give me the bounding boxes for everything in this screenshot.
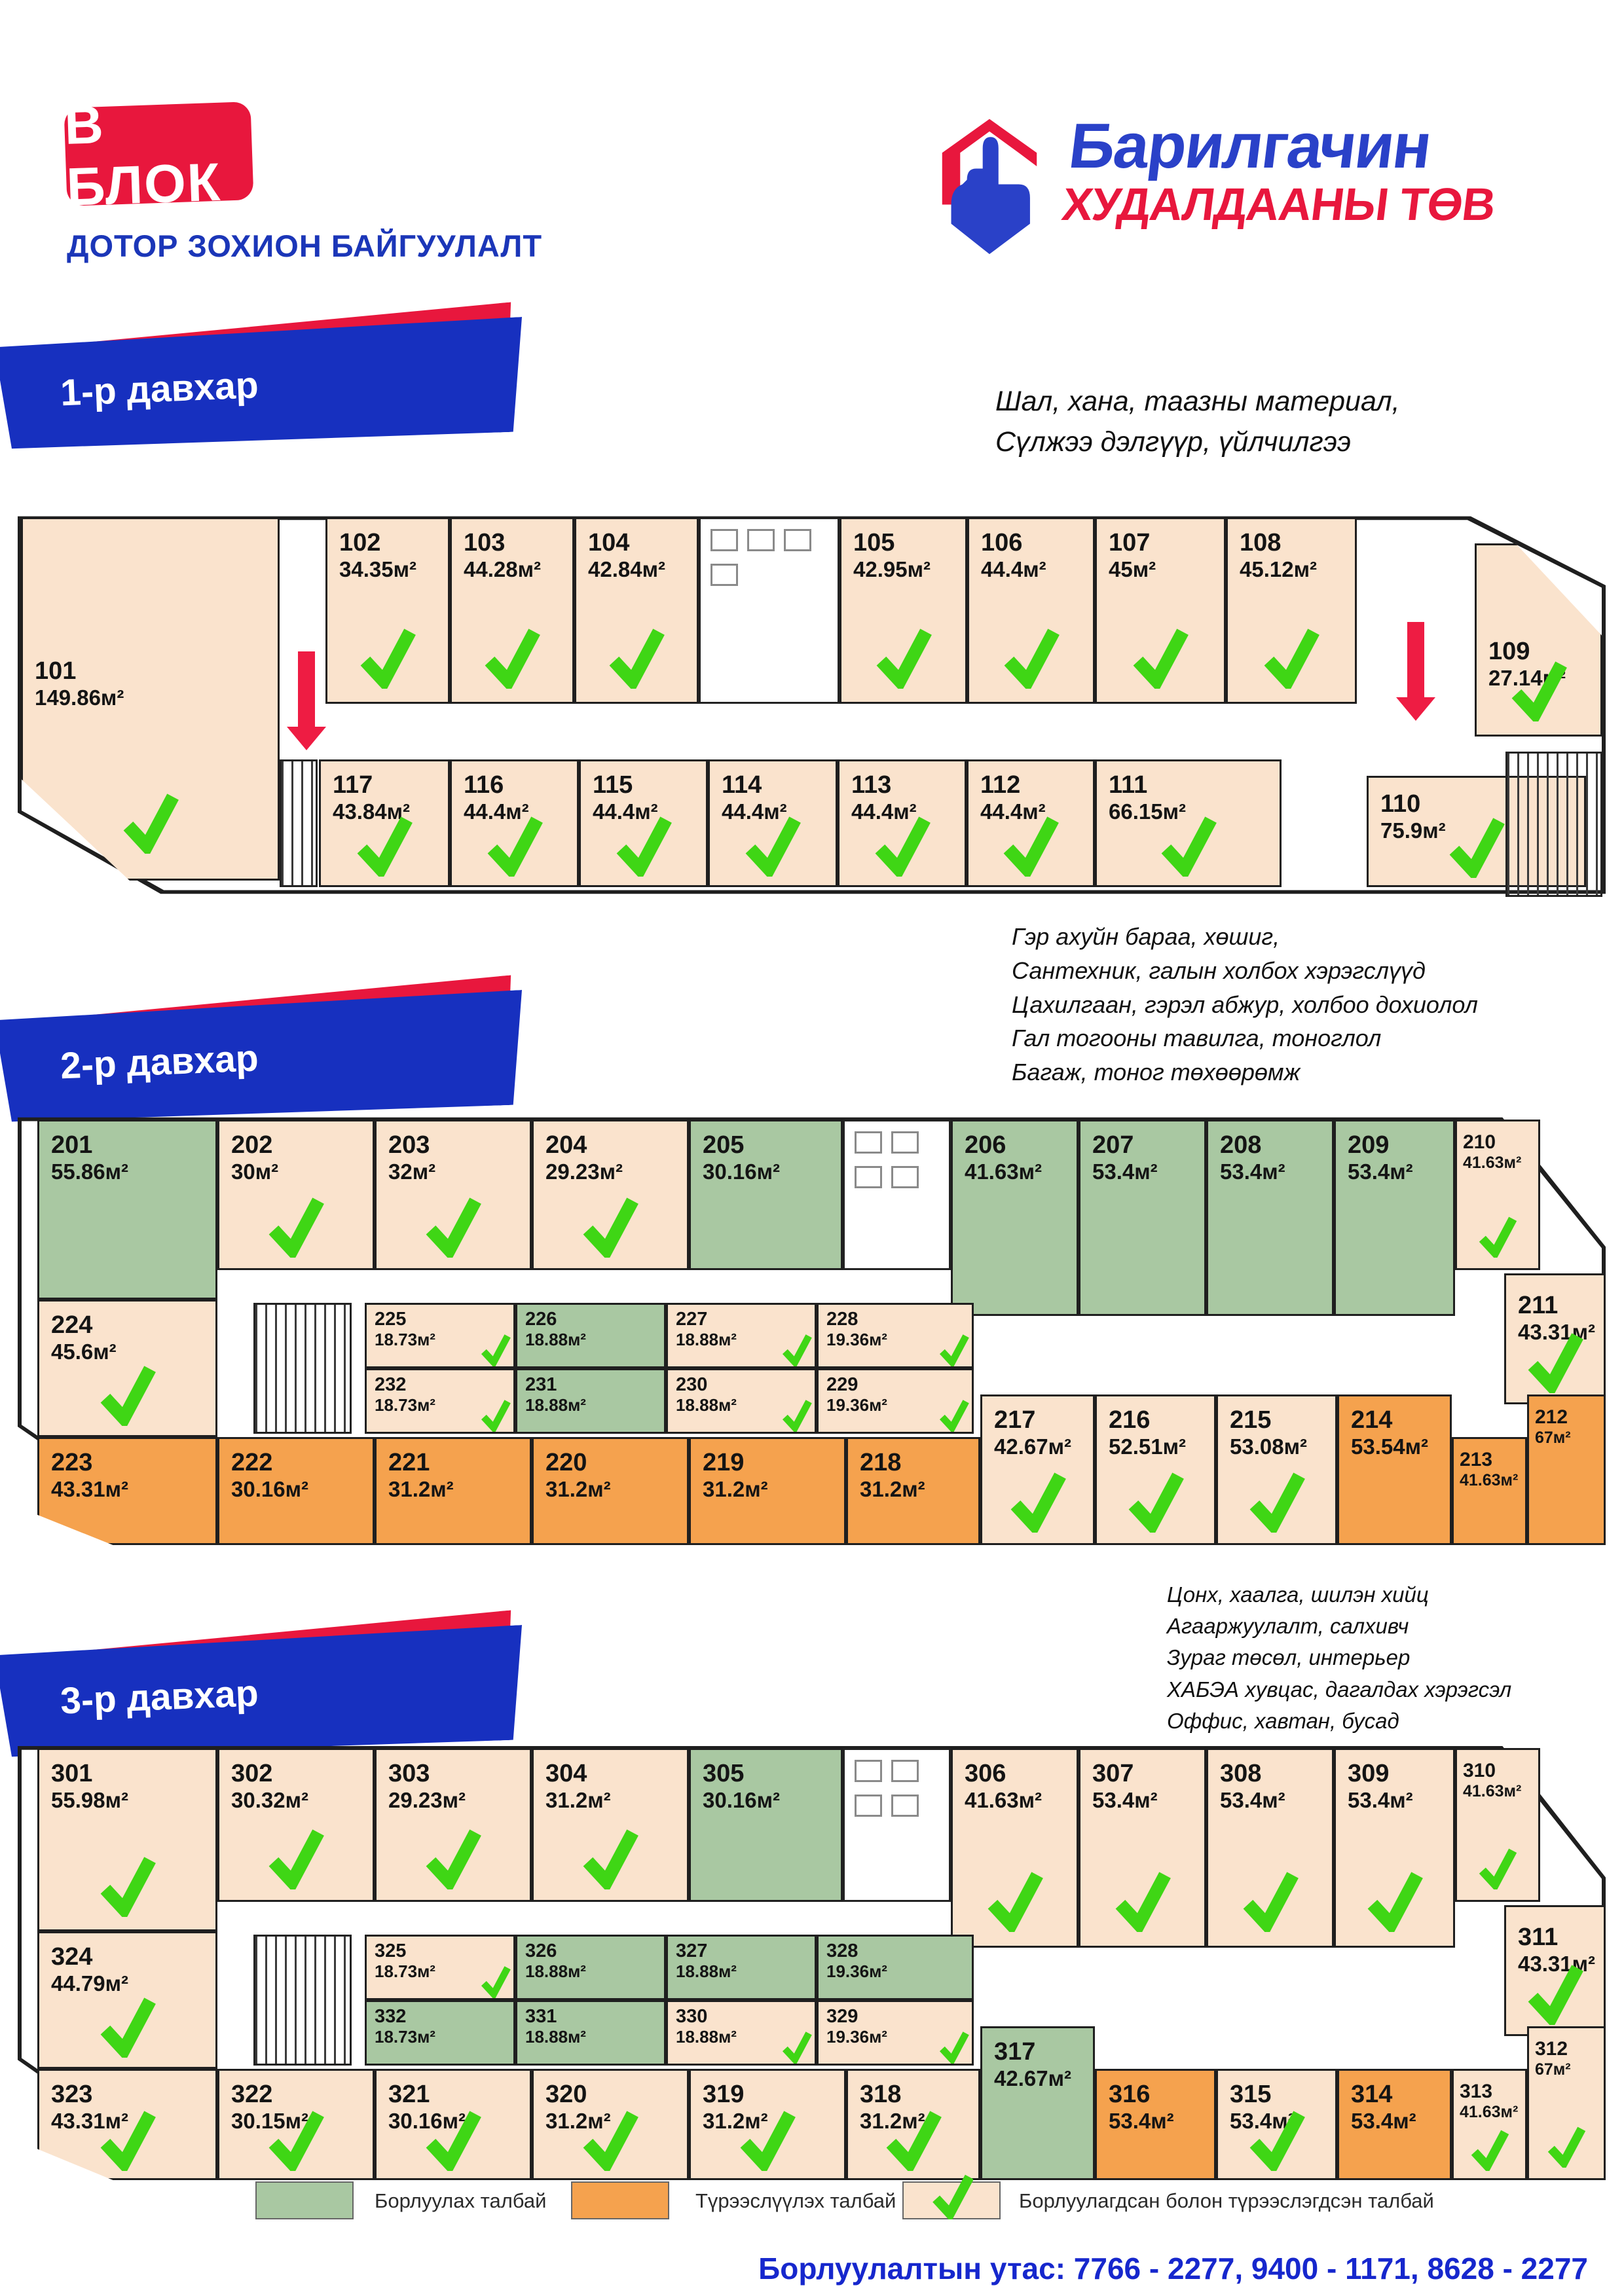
logo-text: Барилгачин ХУДАЛДААНЫ ТӨВ (1054, 113, 1506, 268)
room-214: 21453.54м² (1337, 1394, 1452, 1545)
room-320: 32031.2м² (532, 2069, 689, 2180)
check-icon (1527, 1332, 1583, 1393)
wc-fixture-icon (855, 1166, 882, 1188)
room-area: 44.4м² (981, 558, 1093, 582)
room-area: 53.4м² (1348, 1160, 1453, 1184)
check-icon (876, 627, 932, 689)
room-area: 44.79м² (51, 1972, 215, 1996)
down-arrow-icon (1407, 622, 1424, 697)
room-226: 22618.88м² (515, 1303, 666, 1368)
wc-fixture-icon (891, 1760, 919, 1782)
room-number: 325 (375, 1940, 513, 1962)
stairs (253, 1935, 352, 2066)
room-325: 32518.73м² (365, 1935, 515, 2000)
check-icon (1471, 2129, 1509, 2171)
stairs (253, 1303, 352, 1434)
check-icon (782, 2031, 812, 2064)
company-logo: Барилгачин ХУДАЛДААНЫ ТӨВ (933, 113, 1496, 268)
floor1-banner: 1-р давхар (0, 327, 530, 442)
room-number: 112 (980, 771, 1093, 800)
room-number: 113 (851, 771, 965, 800)
room-303: 30329.23м² (375, 1748, 532, 1902)
floor2-note: Гэр ахуйн бараа, хөшиг, Сантехник, галын… (1012, 920, 1478, 1089)
room-number: 227 (676, 1308, 815, 1330)
logo-house-hand-icon (933, 113, 1046, 268)
logo-line1: Барилгачин (1065, 113, 1506, 179)
room-area: 43.31м² (51, 1478, 215, 1502)
room-area: 53.4м² (1351, 2109, 1450, 2134)
room-number: 232 (375, 1374, 513, 1396)
room-112: 11244.4м² (967, 759, 1095, 887)
check-icon (939, 1334, 969, 1366)
check-icon (425, 1828, 481, 1889)
stairs (280, 759, 318, 887)
check-icon (425, 2109, 481, 2171)
room-number: 104 (588, 528, 697, 558)
room-number: 317 (994, 2037, 1093, 2067)
room-area: 18.73м² (375, 2028, 513, 2047)
check-icon (487, 815, 543, 877)
room-319: 31931.2м² (689, 2069, 846, 2180)
room-number: 108 (1240, 528, 1355, 558)
check-icon (932, 2174, 973, 2219)
check-icon (268, 1196, 324, 1258)
room-area: 19.36м² (826, 1962, 972, 1981)
check-icon (122, 792, 179, 854)
room-number: 207 (1092, 1131, 1204, 1160)
legend-sale-label: Борлуулах талбай (375, 2189, 546, 2213)
room-308: 30853.4м² (1206, 1748, 1334, 1948)
room-number: 306 (965, 1759, 1077, 1789)
banner-blue-shape: 1-р давхар (0, 317, 532, 453)
legend-sold-label: Борлуулагдсан болон түрээслэгдсэн талбай (1019, 2189, 1434, 2213)
room-number: 223 (51, 1448, 215, 1478)
wc-fixture-icon (747, 529, 775, 551)
room-number: 322 (231, 2080, 373, 2109)
room-329: 32919.36м² (817, 2000, 974, 2066)
room-number: 203 (388, 1131, 530, 1160)
room-207: 20753.4м² (1079, 1120, 1206, 1316)
room-230: 23018.88м² (666, 1368, 817, 1434)
check-icon (1003, 627, 1060, 689)
room-area: 53.4м² (1109, 2109, 1214, 2134)
check-icon (100, 1996, 156, 2058)
room-number: 208 (1220, 1131, 1332, 1160)
legend-rent-swatch (571, 2181, 669, 2219)
check-icon (874, 815, 931, 877)
check-icon (987, 1870, 1043, 1932)
check-icon (481, 1965, 511, 1998)
room-315: 31553.4м² (1216, 2069, 1337, 2180)
room-302: 30230.32м² (217, 1748, 375, 1902)
check-icon (100, 1364, 156, 1426)
check-icon (782, 1399, 812, 1432)
brochure-page: В БЛОК ДОТОР ЗОХИОН БАЙГУУЛАЛТ Барилгачи… (0, 0, 1624, 2296)
room-number: 328 (826, 1940, 972, 1962)
check-icon (582, 1828, 638, 1889)
check-icon (939, 2031, 969, 2064)
room-area: 45м² (1109, 558, 1224, 582)
room-number: 314 (1351, 2080, 1450, 2109)
room-331: 33118.88м² (515, 2000, 666, 2066)
check-icon (1479, 1216, 1517, 1258)
room-321: 32130.16м² (375, 2069, 532, 2180)
room-area: 53.54м² (1351, 1435, 1450, 1459)
room-323: 32343.31м² (37, 2069, 217, 2180)
room-area: 67м² (1535, 2060, 1604, 2079)
room-area: 31.2м² (388, 1478, 530, 1502)
room-330: 33018.88м² (666, 2000, 817, 2066)
room-317: 31742.67м² (980, 2026, 1095, 2180)
room-area: 18.88м² (676, 1962, 815, 1981)
room-109: 10927.14м² (1475, 543, 1602, 737)
room-114: 11444.4м² (708, 759, 838, 887)
room-307: 30753.4м² (1079, 1748, 1206, 1948)
room-number: 218 (860, 1448, 978, 1478)
room-number: 206 (965, 1131, 1077, 1160)
room-number: 309 (1348, 1759, 1453, 1789)
room-304: 30431.2м² (532, 1748, 689, 1902)
room-number: 320 (545, 2080, 687, 2109)
room-area: 32м² (388, 1160, 530, 1184)
room-area: 41.63м² (1460, 1471, 1525, 1489)
check-icon (484, 627, 540, 689)
check-icon (739, 2109, 796, 2171)
room-number: 327 (676, 1940, 815, 1962)
room-number: 205 (703, 1131, 841, 1160)
room-area: 53.08м² (1230, 1435, 1335, 1459)
room-number: 102 (339, 528, 448, 558)
check-icon (745, 815, 801, 877)
room-number: 105 (853, 528, 965, 558)
room-212: 21267м² (1527, 1394, 1606, 1545)
room-area: 41.63м² (1463, 1782, 1538, 1800)
room-number: 219 (703, 1448, 844, 1478)
room-309: 30953.4м² (1334, 1748, 1455, 1948)
room-area: 42.67м² (994, 2067, 1093, 2091)
room-number: 321 (388, 2080, 530, 2109)
room-number: 101 (35, 657, 278, 686)
check-icon (1479, 1848, 1517, 1889)
room-312: 31267м² (1527, 2026, 1606, 2180)
room-number: 209 (1348, 1131, 1453, 1160)
room-314: 31453.4м² (1337, 2069, 1452, 2180)
room-216: 21652.51м² (1095, 1394, 1216, 1545)
room-number: 302 (231, 1759, 373, 1789)
legend-sale-swatch (255, 2181, 354, 2219)
room-number: 222 (231, 1448, 373, 1478)
room-number: 225 (375, 1308, 513, 1330)
wc-fixture-icon (855, 1795, 882, 1817)
room-area: 18.88м² (525, 2028, 664, 2047)
room-number: 106 (981, 528, 1093, 558)
room-108: 10845.12м² (1226, 517, 1357, 704)
room-221: 22131.2м² (375, 1437, 532, 1545)
room-area: 53.4м² (1220, 1160, 1332, 1184)
room-number: 117 (333, 771, 448, 800)
room-232: 23218.73м² (365, 1368, 515, 1434)
room-area: 18.88м² (525, 1396, 664, 1415)
room-301: 30155.98м² (37, 1748, 217, 1931)
check-icon (1160, 815, 1217, 877)
room-111: 11166.15м² (1095, 759, 1282, 887)
room-322: 32230.15м² (217, 2069, 375, 2180)
floor3-banner-label: 3-р давхар (0, 1671, 259, 1725)
room-number: 224 (51, 1311, 215, 1340)
room-211: 21143.31м² (1504, 1273, 1606, 1404)
room-area: 42.95м² (853, 558, 965, 582)
room-number: 115 (593, 771, 706, 800)
room-number: 202 (231, 1131, 373, 1160)
room-number: 318 (860, 2080, 978, 2109)
room-area: 30м² (231, 1160, 373, 1184)
block-badge-label: В БЛОК (64, 89, 254, 219)
room-area: 30.16м² (703, 1789, 841, 1813)
room-area: 31.2м² (545, 1789, 687, 1813)
room-number: 213 (1460, 1448, 1525, 1471)
room-209: 20953.4м² (1334, 1120, 1455, 1316)
legend-sold-swatch (902, 2181, 1001, 2219)
check-icon (1132, 627, 1189, 689)
room-305: 30530.16м² (689, 1748, 843, 1902)
room-area: 52.51м² (1109, 1435, 1214, 1459)
room-area: 53.4м² (1092, 1160, 1204, 1184)
room-116: 11644.4м² (450, 759, 579, 887)
room-number: 312 (1535, 2037, 1604, 2060)
room-number: 310 (1463, 1759, 1538, 1782)
room-number: 212 (1535, 1406, 1604, 1429)
room-number: 329 (826, 2005, 972, 2028)
room-number: 303 (388, 1759, 530, 1789)
room-area: 53.4м² (1220, 1789, 1332, 1813)
room-210: 21041.63м² (1455, 1120, 1540, 1270)
room-number: 311 (1518, 1923, 1604, 1952)
room-number: 216 (1109, 1406, 1214, 1435)
floor3-banner: 3-р давхар (0, 1635, 530, 1750)
check-icon (1527, 1963, 1583, 2025)
wc-fixture-icon (710, 564, 738, 586)
room-332: 33218.73м² (365, 2000, 515, 2066)
check-icon (1511, 660, 1567, 721)
room-area: 29.23м² (388, 1789, 530, 1813)
room-number: 324 (51, 1942, 215, 1972)
check-icon (1263, 627, 1319, 689)
check-icon (1115, 1870, 1171, 1932)
check-icon (1367, 1870, 1423, 1932)
room-area: 53.4м² (1348, 1789, 1453, 1813)
room-number: 114 (722, 771, 836, 800)
room-number: 201 (51, 1131, 215, 1160)
room-area: 41.63м² (965, 1160, 1077, 1184)
floor2-banner-label: 2-р давхар (0, 1036, 259, 1090)
floor1-banner-label: 1-р давхар (0, 363, 259, 417)
room-number: 111 (1109, 771, 1280, 800)
room-area: 31.2м² (545, 1478, 687, 1502)
room-number: 308 (1220, 1759, 1332, 1789)
check-icon (356, 815, 413, 877)
wc-fixture-icon (891, 1166, 919, 1188)
room-213: 21341.63м² (1452, 1437, 1527, 1545)
room-area: 45.12м² (1240, 558, 1355, 582)
room-105: 10542.95м² (840, 517, 967, 704)
logo-line2: ХУДАЛДААНЫ ТӨВ (1060, 179, 1498, 230)
room-area: 42.84м² (588, 558, 697, 582)
check-icon (616, 815, 672, 877)
room-311: 31143.31м² (1504, 1905, 1606, 2036)
check-icon (268, 2109, 324, 2171)
room-117: 11743.84м² (319, 759, 450, 887)
check-icon (608, 627, 665, 689)
room-area: 42.67м² (994, 1435, 1093, 1459)
room-number: 332 (375, 2005, 513, 2028)
room-number: 211 (1518, 1291, 1604, 1321)
wc-fixture-icon (710, 529, 738, 551)
room-201: 20155.86м² (37, 1120, 217, 1300)
check-icon (1449, 816, 1505, 878)
room-225: 22518.73м² (365, 1303, 515, 1368)
room-number: 221 (388, 1448, 530, 1478)
room-306: 30641.63м² (951, 1748, 1079, 1948)
room-313: 31341.63м² (1452, 2069, 1527, 2180)
room-area: 31.2м² (860, 1478, 978, 1502)
wc-fixture-icon (891, 1795, 919, 1817)
wc-block (843, 1120, 951, 1270)
floor2-plan: 20155.86м²20230м²20332м²20429.23м²20530.… (18, 1106, 1606, 1545)
room-number: 231 (525, 1374, 664, 1396)
floor3-note: Цонх, хаалга, шилэн хийц Агааржуулалт, с… (1167, 1579, 1511, 1737)
legend-rent-label: Түрээслүүлэх талбай (695, 2189, 896, 2213)
check-icon (582, 2109, 638, 2171)
room-102: 10234.35м² (325, 517, 450, 704)
room-328: 32819.36м² (817, 1935, 974, 2000)
room-area: 67м² (1535, 1429, 1604, 1447)
room-310: 31041.63м² (1455, 1748, 1540, 1902)
room-number: 313 (1460, 2080, 1525, 2103)
room-area: 149.86м² (35, 686, 278, 710)
room-115: 11544.4м² (579, 759, 708, 887)
check-icon (1249, 1471, 1305, 1533)
room-217: 21742.67м² (980, 1394, 1095, 1545)
room-number: 305 (703, 1759, 841, 1789)
floor1-note: Шал, хана, таазны материал, Сүлжээ дэлгү… (995, 381, 1400, 463)
room-area: 30.32м² (231, 1789, 373, 1813)
room-area: 41.63м² (965, 1789, 1077, 1813)
room-number: 214 (1351, 1406, 1450, 1435)
room-number: 217 (994, 1406, 1093, 1435)
room-204: 20429.23м² (532, 1120, 689, 1270)
room-106: 10644.4м² (967, 517, 1095, 704)
room-number: 304 (545, 1759, 687, 1789)
room-number: 331 (525, 2005, 664, 2028)
down-arrow-icon (298, 651, 315, 727)
wc-block (699, 517, 840, 704)
check-icon (782, 1334, 812, 1366)
room-number: 301 (51, 1759, 215, 1789)
check-icon (939, 1399, 969, 1432)
check-icon (425, 1196, 481, 1258)
floor2-banner: 2-р давхар (0, 1000, 530, 1115)
room-number: 116 (464, 771, 577, 800)
room-208: 20853.4м² (1206, 1120, 1334, 1316)
banner-blue-shape: 2-р давхар (0, 990, 532, 1126)
floor1-plan: 101149.86м²10234.35м²10344.28м²10442.84м… (18, 504, 1606, 910)
room-number: 228 (826, 1308, 972, 1330)
room-area: 55.98м² (51, 1789, 215, 1813)
room-219: 21931.2м² (689, 1437, 846, 1545)
room-324: 32444.79м² (37, 1931, 217, 2069)
room-number: 210 (1463, 1131, 1538, 1154)
floor3-plan: 30155.98м²30230.32м²30329.23м²30431.2м²3… (18, 1735, 1606, 2180)
room-area: 29.23м² (545, 1160, 687, 1184)
check-icon (481, 1334, 511, 1366)
room-203: 20332м² (375, 1120, 532, 1270)
check-icon (1249, 2109, 1305, 2171)
room-215: 21553.08м² (1216, 1394, 1337, 1545)
room-327: 32718.88м² (666, 1935, 817, 2000)
room-206: 20641.63м² (951, 1120, 1079, 1316)
room-number: 330 (676, 2005, 815, 2028)
room-number: 103 (464, 528, 572, 558)
room-number: 204 (545, 1131, 687, 1160)
room-316: 31653.4м² (1095, 2069, 1216, 2180)
check-icon (582, 1196, 638, 1258)
room-227: 22718.88м² (666, 1303, 817, 1368)
block-badge: В БЛОК (64, 101, 253, 206)
room-number: 319 (703, 2080, 844, 2109)
room-area: 18.88м² (525, 1962, 664, 1981)
wc-fixture-icon (891, 1131, 919, 1154)
wc-fixture-icon (855, 1131, 882, 1154)
check-icon (885, 2109, 942, 2171)
room-number: 226 (525, 1308, 664, 1330)
check-icon (360, 627, 416, 689)
room-area: 45.6м² (51, 1340, 215, 1364)
room-number: 220 (545, 1448, 687, 1478)
room-202: 20230м² (217, 1120, 375, 1270)
room-area: 44.28м² (464, 558, 572, 582)
room-number: 307 (1092, 1759, 1204, 1789)
check-icon (1010, 1471, 1066, 1533)
room-number: 326 (525, 1940, 664, 1962)
room-number: 107 (1109, 528, 1224, 558)
room-229: 22919.36м² (817, 1368, 974, 1434)
room-224: 22445.6м² (37, 1300, 217, 1437)
room-218: 21831.2м² (846, 1437, 980, 1545)
wc-fixture-icon (855, 1760, 882, 1782)
room-area: 18.88м² (525, 1330, 664, 1349)
room-area: 55.86м² (51, 1160, 215, 1184)
room-205: 20530.16м² (689, 1120, 843, 1270)
room-area: 53.4м² (1092, 1789, 1204, 1813)
room-107: 10745м² (1095, 517, 1226, 704)
check-icon (100, 2109, 156, 2171)
room-104: 10442.84м² (574, 517, 699, 704)
check-icon (1128, 1471, 1184, 1533)
check-icon (481, 1399, 511, 1432)
room-number: 315 (1230, 2080, 1335, 2109)
room-number: 323 (51, 2080, 215, 2109)
check-icon (1547, 2126, 1585, 2168)
room-area: 34.35м² (339, 558, 448, 582)
check-icon (1242, 1870, 1299, 1932)
room-103: 10344.28м² (450, 517, 574, 704)
room-area: 41.63м² (1463, 1154, 1538, 1172)
room-number: 229 (826, 1374, 972, 1396)
wc-fixture-icon (784, 529, 811, 551)
room-318: 31831.2м² (846, 2069, 980, 2180)
stairs (1505, 752, 1602, 897)
check-icon (1003, 815, 1059, 877)
